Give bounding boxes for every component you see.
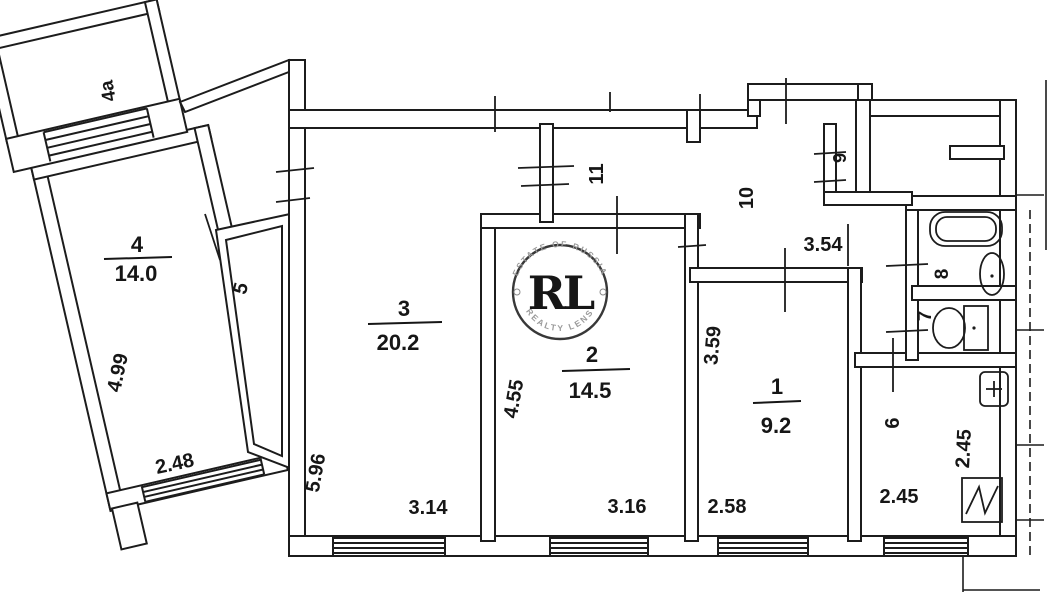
area-divider — [753, 401, 801, 403]
dim-room2-width: 3.16 — [608, 496, 647, 518]
room-6-label: 6 — [882, 417, 904, 428]
dim-room3-height: 5.96 — [302, 452, 330, 494]
watermark-dot-left — [514, 289, 520, 295]
dim-room2-height: 4.55 — [500, 378, 528, 420]
toilet — [933, 306, 988, 350]
watermark-initials: RL — [528, 266, 595, 320]
wall — [112, 503, 147, 550]
dim-kitchen-width: 2.45 — [880, 486, 919, 508]
dim-room3-width: 3.14 — [409, 497, 449, 519]
window — [884, 537, 968, 555]
dim-hall-width: 3.54 — [804, 234, 844, 256]
floor-plan-page: 4a 4 14.0 4.99 2.48 5 3 20.2 5.96 3.14 1… — [0, 0, 1051, 600]
room-2-number: 2 — [586, 342, 598, 367]
room-2-area: 14.5 — [569, 378, 612, 403]
room-3-area: 20.2 — [377, 330, 420, 355]
watermark-dot-right — [600, 289, 606, 295]
dim-kitchen-height: 2.45 — [952, 429, 976, 469]
wall — [31, 163, 124, 509]
room-5-walls — [216, 214, 290, 468]
area-divider — [104, 257, 172, 259]
floor-plan: 4a 4 14.0 4.99 2.48 5 3 20.2 5.96 3.14 1… — [0, 0, 1051, 600]
window — [550, 537, 648, 555]
area-divider — [562, 369, 630, 371]
stove — [962, 478, 1002, 522]
dim-room4-height: 4.99 — [103, 351, 133, 394]
room-1-number: 1 — [771, 374, 783, 399]
wall — [0, 37, 19, 143]
room-1-area: 9.2 — [761, 413, 792, 438]
hall-10-label: 10 — [736, 187, 758, 209]
window — [333, 537, 445, 555]
room-3-number: 3 — [398, 296, 410, 321]
area-divider — [368, 322, 442, 324]
room-4-number: 4 — [131, 232, 144, 257]
window — [718, 537, 808, 555]
dim-room1-height: 3.59 — [700, 325, 725, 366]
room-4a-label: 4a — [96, 78, 120, 103]
wall — [180, 60, 294, 112]
watermark-logo: ESTATE OF RUSSIA REALTY LENS RL — [510, 239, 609, 339]
dim-room1-width: 2.58 — [708, 496, 747, 518]
room-8-label: 8 — [932, 269, 953, 280]
room-9-label: 9 — [830, 153, 850, 163]
wall — [0, 0, 159, 51]
wall — [145, 0, 181, 105]
room-4-area: 14.0 — [115, 261, 158, 286]
hall-11-label: 11 — [586, 163, 608, 184]
room-7-label: 7 — [915, 311, 936, 322]
bathtub — [930, 212, 1002, 246]
